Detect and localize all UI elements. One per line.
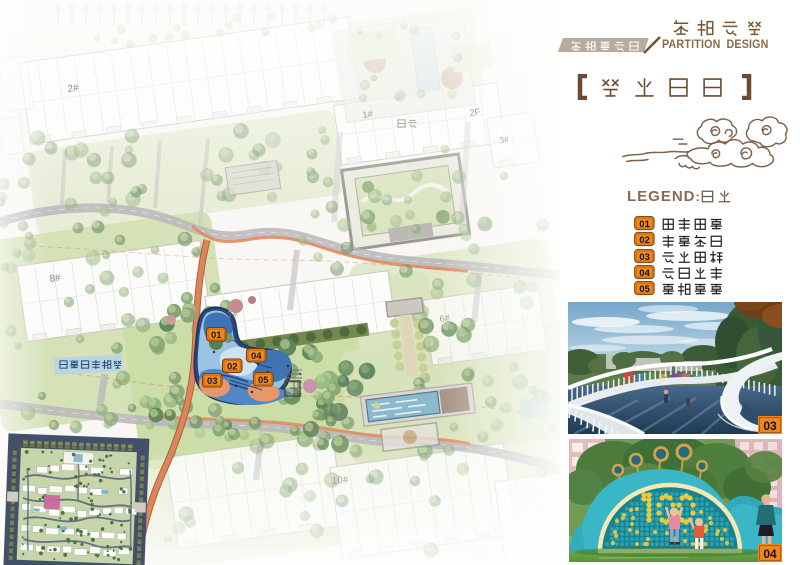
- svg-text:05: 05: [258, 375, 269, 386]
- svg-text:1#: 1#: [362, 109, 373, 120]
- svg-text:02: 02: [227, 362, 238, 373]
- svg-text:01: 01: [639, 219, 650, 230]
- svg-text:7#: 7#: [227, 309, 238, 320]
- svg-text:8#: 8#: [49, 272, 62, 285]
- svg-text:02: 02: [639, 235, 650, 246]
- svg-text:2#: 2#: [67, 82, 80, 95]
- svg-text:03: 03: [639, 252, 650, 263]
- svg-text:04: 04: [639, 268, 650, 279]
- svg-text:01: 01: [211, 330, 222, 341]
- svg-text:04: 04: [763, 547, 777, 561]
- svg-text:10#: 10#: [331, 475, 349, 487]
- svg-text:04: 04: [251, 351, 262, 362]
- svg-text:3#: 3#: [499, 135, 510, 145]
- svg-text:03: 03: [763, 419, 777, 433]
- svg-text:05: 05: [639, 284, 650, 295]
- svg-text:2F: 2F: [469, 107, 481, 118]
- svg-text:6#: 6#: [439, 313, 450, 324]
- svg-text:03: 03: [207, 376, 218, 387]
